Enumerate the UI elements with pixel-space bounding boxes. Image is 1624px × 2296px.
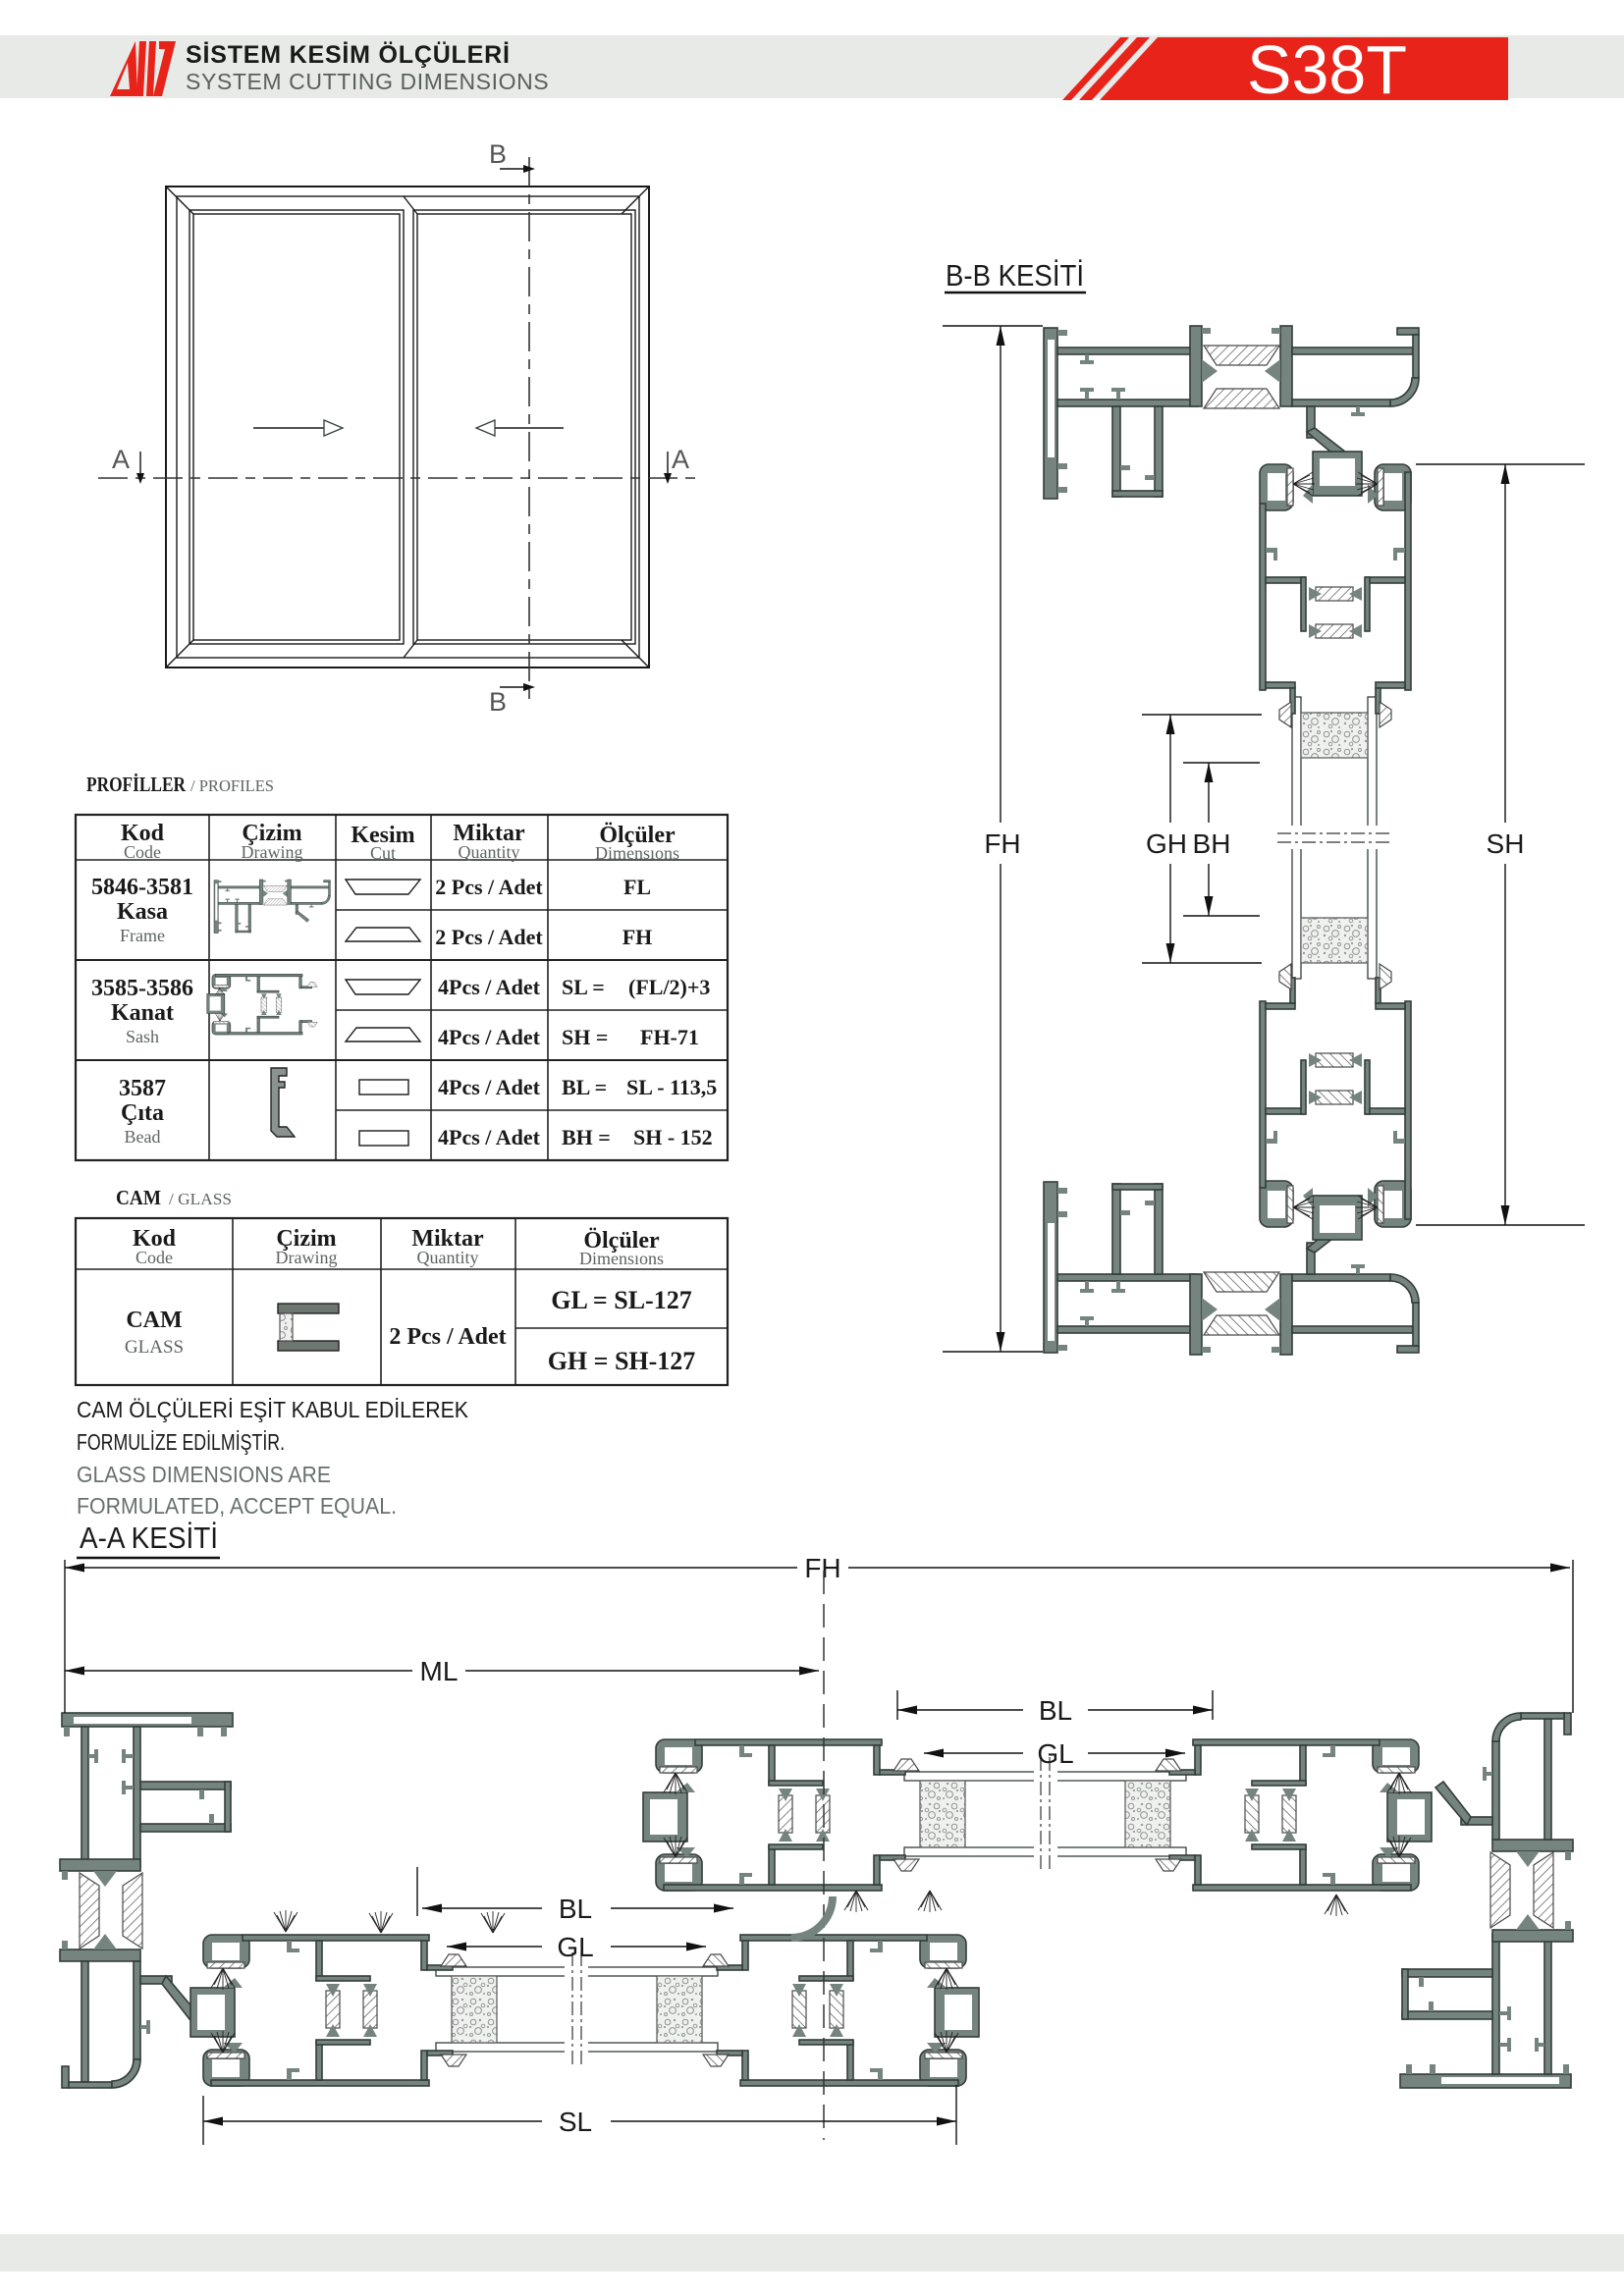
svg-text:FH: FH [804, 1553, 840, 1583]
svg-text:BH =: BH = [562, 1125, 611, 1149]
svg-text:CAM: CAM [116, 1186, 161, 1209]
svg-text:GLASS DIMENSIONS ARE: GLASS DIMENSIONS ARE [77, 1462, 331, 1487]
svg-text:GH: GH [1146, 828, 1187, 859]
svg-text:A: A [112, 445, 130, 474]
svg-text:Dimensıons: Dimensıons [579, 1249, 664, 1268]
svg-text:GLASS: GLASS [125, 1337, 184, 1358]
svg-text:Bead: Bead [125, 1127, 161, 1147]
svg-text:A: A [672, 445, 689, 474]
svg-text:Dimensıons: Dimensıons [595, 843, 679, 863]
svg-text:2 Pcs / Adet: 2 Pcs / Adet [435, 925, 543, 949]
svg-text:2 Pcs / Adet: 2 Pcs / Adet [389, 1324, 506, 1350]
svg-text:FORMULATED, ACCEPT EQUAL.: FORMULATED, ACCEPT EQUAL. [77, 1493, 397, 1519]
svg-text:2 Pcs / Adet: 2 Pcs / Adet [435, 875, 543, 899]
svg-text:FH: FH [623, 925, 653, 949]
svg-text:SYSTEM CUTTING DIMENSIONS: SYSTEM CUTTING DIMENSIONS [186, 69, 549, 94]
svg-text:Code: Code [124, 842, 161, 862]
svg-text:PROFİLLER: PROFİLLER [86, 773, 187, 796]
svg-text:SL: SL [559, 2107, 592, 2137]
svg-text:4Pcs / Adet: 4Pcs / Adet [438, 1075, 541, 1099]
svg-text:BL: BL [1039, 1695, 1072, 1726]
svg-text:Cut: Cut [370, 843, 396, 863]
svg-text:5846-3581: 5846-3581 [91, 875, 193, 900]
svg-text:Kasa: Kasa [117, 899, 168, 925]
svg-text:Kanat: Kanat [111, 1000, 174, 1026]
svg-text:Quantity: Quantity [459, 842, 520, 862]
svg-text:Drawing: Drawing [276, 1248, 338, 1267]
svg-text:SH: SH [1487, 828, 1525, 859]
svg-text:FL: FL [623, 875, 651, 899]
svg-text:ML: ML [420, 1656, 459, 1686]
svg-text:BL =: BL = [562, 1075, 607, 1099]
svg-text:4Pcs / Adet: 4Pcs / Adet [438, 975, 541, 999]
svg-text:Code: Code [135, 1248, 173, 1267]
svg-text:4Pcs / Adet: 4Pcs / Adet [438, 1025, 541, 1049]
svg-text:(FL/2)+3: (FL/2)+3 [628, 975, 710, 999]
svg-text:A-A KESİTİ: A-A KESİTİ [80, 1521, 218, 1555]
svg-text:Quantity: Quantity [417, 1248, 479, 1267]
svg-text:BH: BH [1193, 828, 1231, 859]
svg-text:Drawing: Drawing [242, 842, 303, 862]
svg-text:/ GLASS: / GLASS [169, 1190, 232, 1208]
svg-text:B-B KESİTİ: B-B KESİTİ [946, 258, 1084, 293]
svg-text:GL: GL [1037, 1738, 1073, 1769]
svg-text:GL = SL-127: GL = SL-127 [551, 1286, 691, 1314]
svg-text:BL: BL [559, 1894, 592, 1924]
svg-text:B: B [489, 687, 507, 717]
svg-text:3585-3586: 3585-3586 [91, 976, 193, 1001]
svg-text:B: B [489, 139, 507, 169]
svg-text:SL =: SL = [562, 975, 605, 999]
svg-text:CAM ÖLÇÜLERİ EŞİT KABUL EDİLER: CAM ÖLÇÜLERİ EŞİT KABUL EDİLEREK [77, 1397, 469, 1422]
svg-text:SH - 152: SH - 152 [633, 1125, 713, 1149]
svg-text:Sash: Sash [126, 1027, 159, 1046]
svg-text:FH-71: FH-71 [640, 1025, 699, 1049]
svg-text:SL - 113,5: SL - 113,5 [626, 1075, 717, 1099]
svg-text:Frame: Frame [120, 926, 165, 945]
svg-text:GL: GL [557, 1932, 593, 1962]
svg-text:4Pcs / Adet: 4Pcs / Adet [438, 1125, 541, 1149]
svg-text:S38T: S38T [1247, 31, 1407, 108]
svg-text:FORMULİZE EDİLMİŞTİR.: FORMULİZE EDİLMİŞTİR. [77, 1429, 285, 1455]
svg-text:3587: 3587 [119, 1076, 166, 1101]
svg-text:CAM: CAM [126, 1308, 182, 1333]
svg-text:SH =: SH = [562, 1025, 608, 1049]
svg-text:GH = SH-127: GH = SH-127 [548, 1347, 696, 1375]
svg-text:Çıta: Çıta [121, 1100, 164, 1126]
svg-text:FH: FH [984, 828, 1020, 859]
svg-text:SİSTEM KESİM ÖLÇÜLERİ: SİSTEM KESİM ÖLÇÜLERİ [186, 40, 511, 69]
svg-text:/ PROFILES: / PROFILES [190, 776, 274, 795]
